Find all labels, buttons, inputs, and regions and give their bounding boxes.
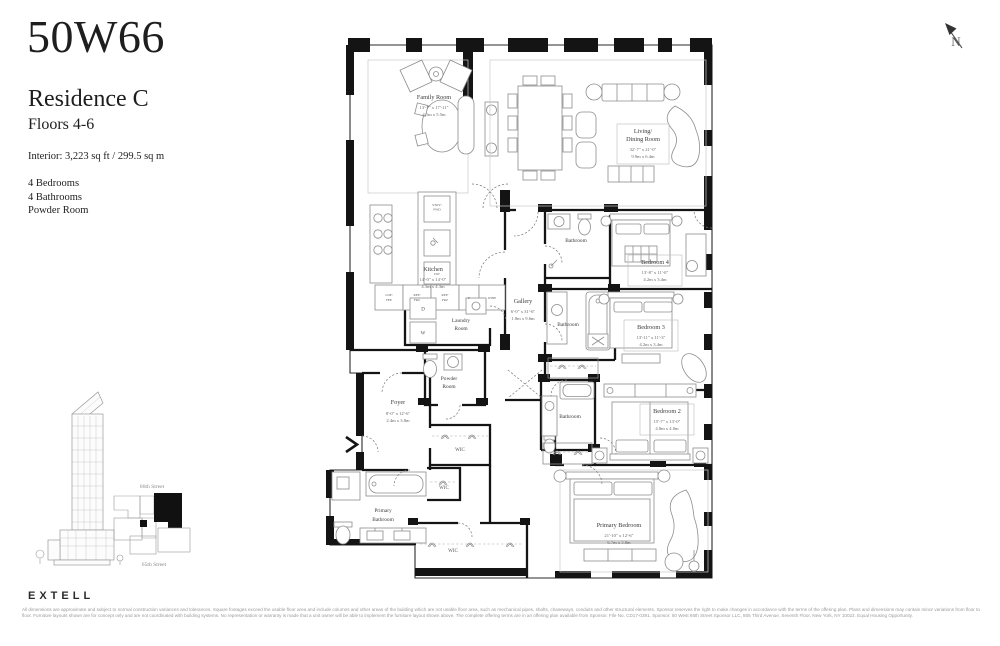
bedroom-2-dims-metric: 4.8m x 4.0m — [655, 426, 679, 431]
building-keyplan: 66th Street 65th Street — [24, 382, 224, 582]
bedroom-4-dims-metric: 4.2m x 3.4m — [643, 277, 667, 282]
floor-plan: Family Room 13'-7" x 17'-11" 4.1m x 5.5m… — [320, 38, 732, 600]
wic-1-label: WIC — [455, 448, 465, 453]
residence-title: Residence C — [28, 86, 149, 113]
entry-arrow-icon — [346, 437, 357, 452]
wine-label: WINE — [488, 296, 497, 300]
kitchen-label: Kitchen — [423, 266, 443, 273]
bedroom-4-label: Bedroom 4 — [641, 259, 669, 266]
bathroom-1-label: Bathroom — [565, 238, 587, 244]
legal-disclaimer: All dimensions are approximate and subje… — [22, 607, 980, 619]
floors-subtitle: Floors 4-6 — [28, 116, 94, 134]
coffee-label-1: COF/ — [385, 293, 392, 297]
bedroom-2-label: Bedroom 2 — [653, 408, 681, 415]
feature-powder: Powder Room — [28, 204, 88, 218]
bedroom-2-dims: 15'-7" x 13'-0" — [654, 419, 681, 424]
living-room-label-1: Living/ — [634, 128, 652, 135]
primary-bedroom-dims-metric: 6.7m x 3.8m — [607, 540, 631, 545]
living-room-dims-metric: 9.9m x 6.4m — [631, 154, 655, 159]
kitchen-dims: 14'-0" x 14'-0" — [420, 277, 447, 282]
kitchen-dims-metric: 4.3m x 4.3m — [421, 284, 445, 289]
street-top-label: 66th Street — [140, 484, 165, 490]
family-room-dims-metric: 4.1m x 5.5m — [422, 112, 446, 117]
ref-frz-2-label-1: REF/ — [442, 293, 449, 297]
primary-bathroom-label-2: Bathroom — [372, 517, 394, 523]
island-appliance-label-2: FWD — [433, 208, 441, 212]
bathroom-2-label: Bathroom — [557, 322, 579, 328]
bedroom-3-dims: 13'-11" x 11'-3" — [637, 335, 666, 340]
island-appliance-label-1: STOV/ — [432, 203, 442, 207]
compass-label: N — [951, 34, 961, 49]
bedroom-3-dims-metric: 4.2m x 3.4m — [639, 342, 663, 347]
bedroom-4-dims: 13'-8" x 11'-0" — [642, 270, 669, 275]
gallery-dims-metric: 1.8m x 9.6m — [511, 316, 535, 321]
laundry-label-1: Laundry — [452, 318, 471, 324]
freezer-label: F — [468, 296, 470, 300]
interior-area: Interior: 3,223 sq ft / 299.5 sq m — [28, 151, 164, 162]
gallery-label: Gallery — [514, 298, 533, 305]
ref-frz-2-label-2: FRZ — [442, 298, 448, 302]
dishwasher-label: DW — [434, 272, 440, 276]
bathroom-3-label: Bathroom — [559, 414, 581, 420]
bedroom-3-label: Bedroom 3 — [637, 324, 665, 331]
laundry-label-2: Room — [454, 326, 468, 332]
wic-2-label: WIC — [439, 486, 449, 491]
extell-logo: EXTELL — [28, 590, 94, 602]
foyer-label: Foyer — [391, 399, 405, 406]
compass: N — [930, 14, 980, 60]
coffee-label-2: FEE — [386, 298, 392, 302]
tower-illustration — [36, 392, 123, 565]
feature-list: 4 Bedrooms 4 Bathrooms Powder Room — [28, 177, 88, 218]
building-logo: 50W66 — [27, 10, 165, 63]
ref-frz-1-label-2: FRZ — [414, 298, 420, 302]
dryer-label: D — [421, 308, 425, 313]
family-room-dims: 13'-7" x 17'-11" — [420, 105, 449, 110]
primary-bathroom-label-1: Primary — [374, 508, 392, 514]
street-bottom-label: 65th Street — [142, 562, 167, 568]
foyer-dims: 8'-0" x 12'-6" — [386, 411, 411, 416]
primary-bedroom-dims: 21'-10" x 12'-6" — [604, 533, 633, 538]
family-room-label: Family Room — [417, 94, 451, 101]
gallery-dims: 6'-0" x 31'-6" — [511, 309, 536, 314]
powder-room-label-1: Powder — [441, 376, 458, 382]
ref-frz-1-label-1: REF/ — [414, 293, 421, 297]
key-plan: 66th Street 65th Street — [114, 484, 190, 568]
powder-room-label-2: Room — [442, 384, 456, 390]
feature-bathrooms: 4 Bathrooms — [28, 191, 88, 205]
living-room-label-2: Dining Room — [626, 136, 660, 143]
washer-label: W — [421, 332, 426, 337]
living-room-dims: 32'-7" x 21'-0" — [630, 147, 657, 152]
wic-3-label: WIC — [448, 549, 458, 554]
primary-bedroom-label: Primary Bedroom — [597, 522, 642, 529]
foyer-dims-metric: 2.4m x 3.8m — [386, 418, 410, 423]
feature-bedrooms: 4 Bedrooms — [28, 177, 88, 191]
